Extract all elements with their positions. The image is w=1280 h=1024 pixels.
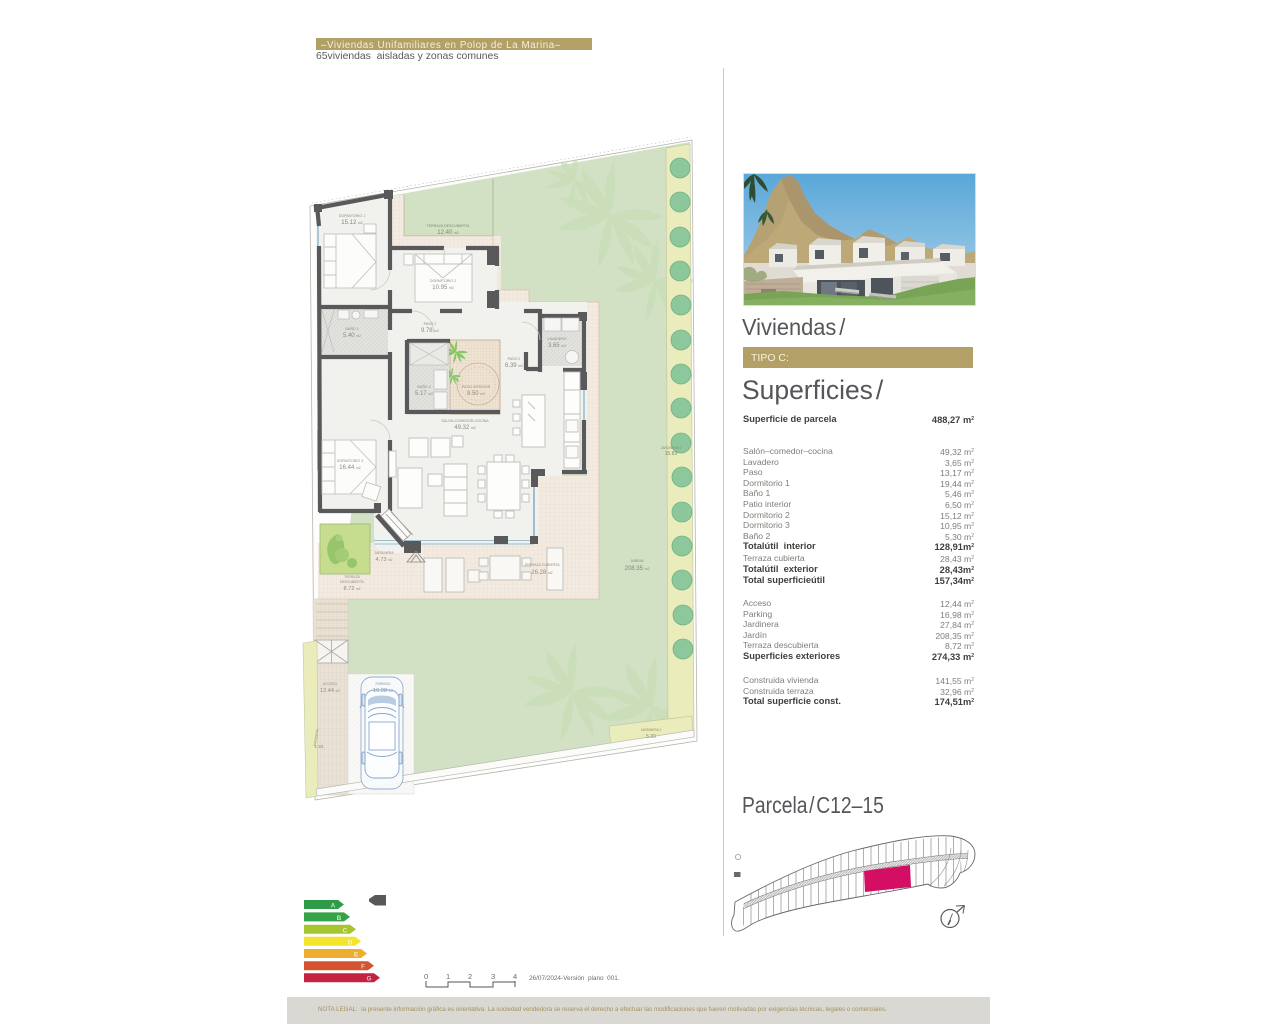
svg-text:DORMITORIO 2: DORMITORIO 2 (430, 279, 456, 283)
svg-text:LAVADERO: LAVADERO (547, 337, 566, 341)
svg-text:SALON-COMEDOR-COCINA: SALON-COMEDOR-COCINA (441, 419, 489, 423)
svg-text:G: G (366, 976, 371, 983)
svg-text:JARDINERA: JARDINERA (374, 551, 394, 555)
svg-text:0: 0 (424, 972, 428, 981)
svg-text:BAÑO 2: BAÑO 2 (417, 384, 430, 389)
svg-text:1.93: 1.93 (315, 744, 324, 749)
svg-text:TERRAZA CUBIERTA: TERRAZA CUBIERTA (524, 563, 560, 567)
svg-text:TERRAZA DESCUBIERTA: TERRAZA DESCUBIERTA (427, 224, 470, 228)
svg-text:B: B (337, 915, 342, 922)
svg-text:BAÑO 1: BAÑO 1 (345, 326, 358, 331)
svg-text:PASO 2: PASO 2 (508, 357, 521, 361)
svg-text:5.39: 5.39 (646, 734, 656, 740)
svg-text:PASO 1: PASO 1 (424, 322, 437, 326)
svg-text:4: 4 (513, 972, 517, 981)
svg-text:DORMITORIO 1: DORMITORIO 1 (339, 214, 365, 218)
svg-text:E: E (354, 952, 359, 959)
svg-text:C: C (343, 927, 348, 934)
svg-text:A: A (331, 903, 336, 910)
svg-text:2: 2 (468, 972, 472, 981)
svg-text:F: F (361, 964, 365, 971)
svg-text:PATIO INTERIOR: PATIO INTERIOR (462, 385, 491, 389)
svg-text:1: 1 (446, 972, 450, 981)
svg-text:3: 3 (491, 972, 495, 981)
svg-text:15.89: 15.89 (665, 451, 678, 457)
svg-text:DESCUBIERTA: DESCUBIERTA (340, 580, 365, 584)
svg-text:ACCESO: ACCESO (323, 682, 338, 686)
svg-text:JARDINERA 1: JARDINERA 1 (661, 446, 682, 450)
svg-text:PARKING: PARKING (375, 682, 390, 686)
svg-text:JARDINERA 2: JARDINERA 2 (641, 728, 662, 732)
svg-text:JARDIN: JARDIN (631, 559, 644, 563)
svg-text:D: D (348, 939, 353, 946)
svg-text:DORMITORIO 3: DORMITORIO 3 (337, 459, 363, 463)
svg-text:TERRAZA: TERRAZA (344, 575, 361, 579)
